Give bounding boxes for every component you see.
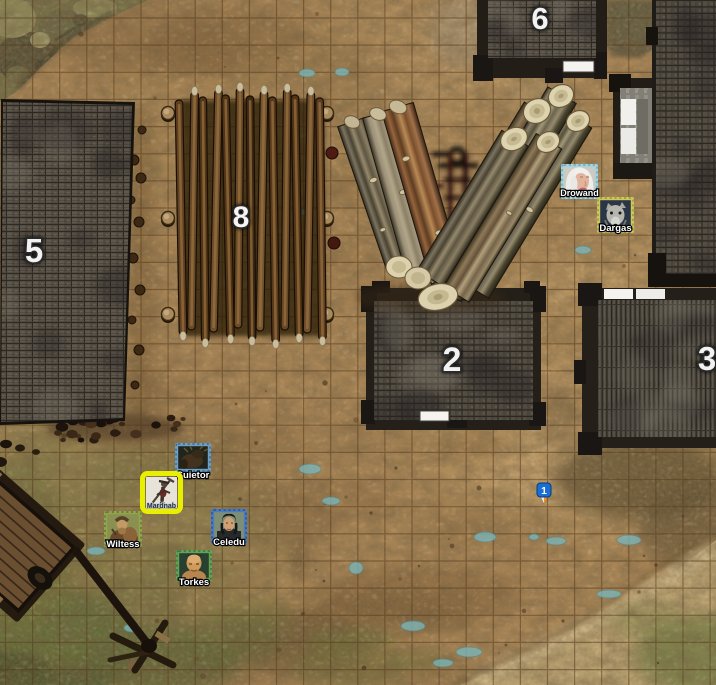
svg-text:2: 2 (443, 341, 462, 379)
svg-text:Mardnab: Mardnab (147, 503, 176, 510)
svg-text:1: 1 (541, 485, 547, 497)
svg-text:Wiltess: Wiltess (106, 539, 139, 550)
svg-text:5: 5 (25, 232, 43, 269)
svg-text:Celedu: Celedu (213, 537, 245, 548)
svg-text:3: 3 (698, 340, 716, 377)
svg-text:6: 6 (531, 1, 548, 36)
svg-text:Dargas: Dargas (599, 223, 631, 234)
svg-text:Drowand: Drowand (560, 188, 599, 198)
svg-text:8: 8 (233, 201, 250, 234)
svg-text:Torkes: Torkes (179, 577, 209, 588)
